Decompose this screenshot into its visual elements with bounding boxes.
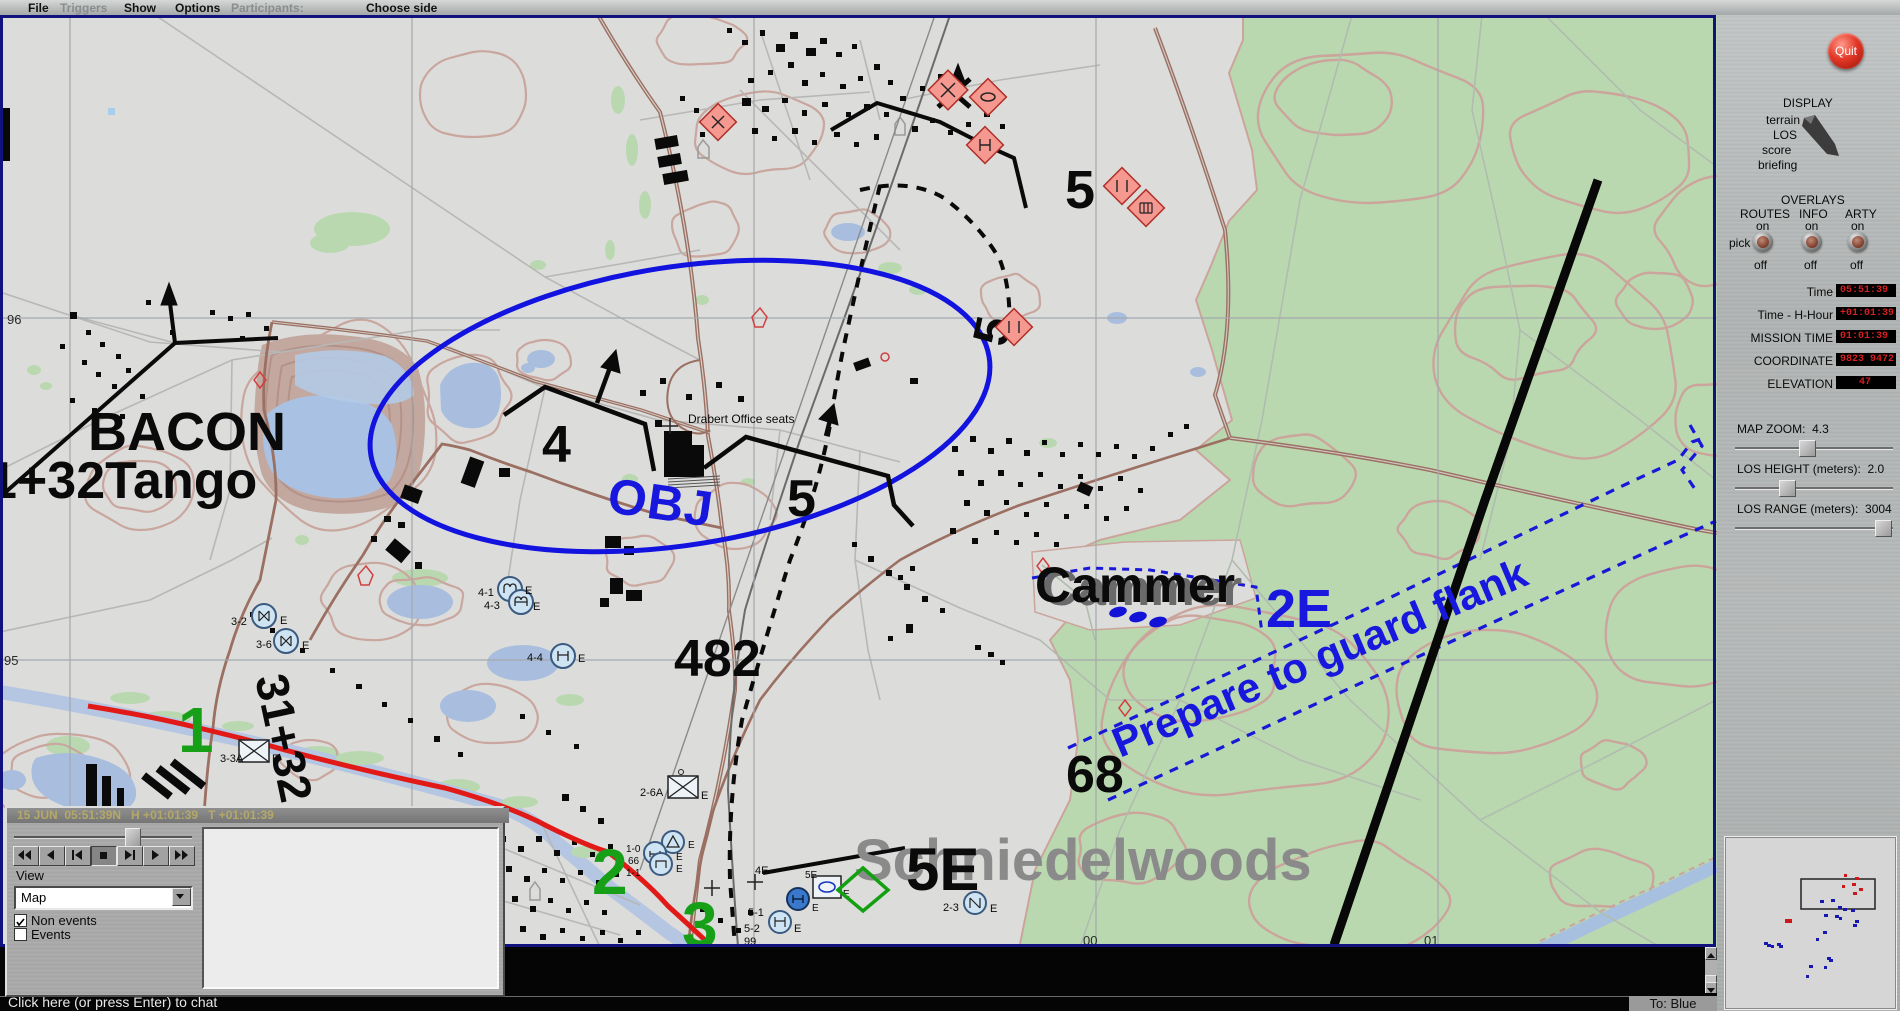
svg-text:5: 5 — [1065, 160, 1095, 220]
svg-text:1-1: 1-1 — [626, 868, 641, 879]
svg-text:E: E — [812, 903, 819, 914]
svg-text:95: 95 — [4, 653, 18, 668]
svg-text:E: E — [302, 640, 309, 652]
svg-text:2-6A: 2-6A — [640, 787, 664, 799]
svg-text:2-3: 2-3 — [943, 902, 959, 914]
svg-text:3-2: 3-2 — [231, 616, 247, 628]
svg-text:5E: 5E — [906, 836, 979, 903]
svg-text:E: E — [688, 840, 695, 851]
svg-text:E: E — [533, 601, 540, 613]
svg-text:E: E — [676, 852, 683, 863]
svg-text:1-0: 1-0 — [626, 844, 641, 855]
svg-text:5E: 5E — [805, 870, 818, 881]
svg-text:68: 68 — [1066, 746, 1124, 804]
svg-text:Cammer: Cammer — [1035, 557, 1235, 613]
svg-text:4-1: 4-1 — [478, 587, 494, 599]
svg-text:5: 5 — [787, 470, 816, 528]
svg-text:4E: 4E — [755, 865, 768, 877]
svg-text:4-4: 4-4 — [527, 652, 543, 664]
svg-text:E: E — [794, 923, 801, 935]
svg-text:2: 2 — [592, 836, 628, 908]
svg-text:Drabert Office seats: Drabert Office seats — [688, 412, 795, 426]
svg-text:5-1: 5-1 — [748, 907, 764, 919]
svg-text:E: E — [272, 753, 279, 765]
svg-text:E: E — [701, 790, 708, 802]
svg-text:4-3: 4-3 — [484, 600, 500, 612]
svg-text:E: E — [525, 585, 532, 597]
svg-text:3-6: 3-6 — [256, 639, 272, 651]
svg-text:3-3A: 3-3A — [220, 753, 244, 765]
svg-text:E: E — [676, 864, 683, 875]
svg-text:E: E — [990, 903, 997, 915]
svg-text:1+32Tango: 1+32Tango — [0, 452, 257, 510]
svg-text:4: 4 — [542, 416, 571, 474]
svg-text:E: E — [280, 615, 287, 627]
svg-text:482: 482 — [674, 630, 761, 688]
svg-text:96: 96 — [7, 312, 21, 327]
svg-text:3: 3 — [682, 889, 718, 947]
svg-text:E: E — [578, 653, 585, 665]
svg-text:66: 66 — [628, 856, 640, 867]
svg-text:5-2: 5-2 — [744, 923, 760, 935]
svg-text:1: 1 — [178, 694, 214, 766]
